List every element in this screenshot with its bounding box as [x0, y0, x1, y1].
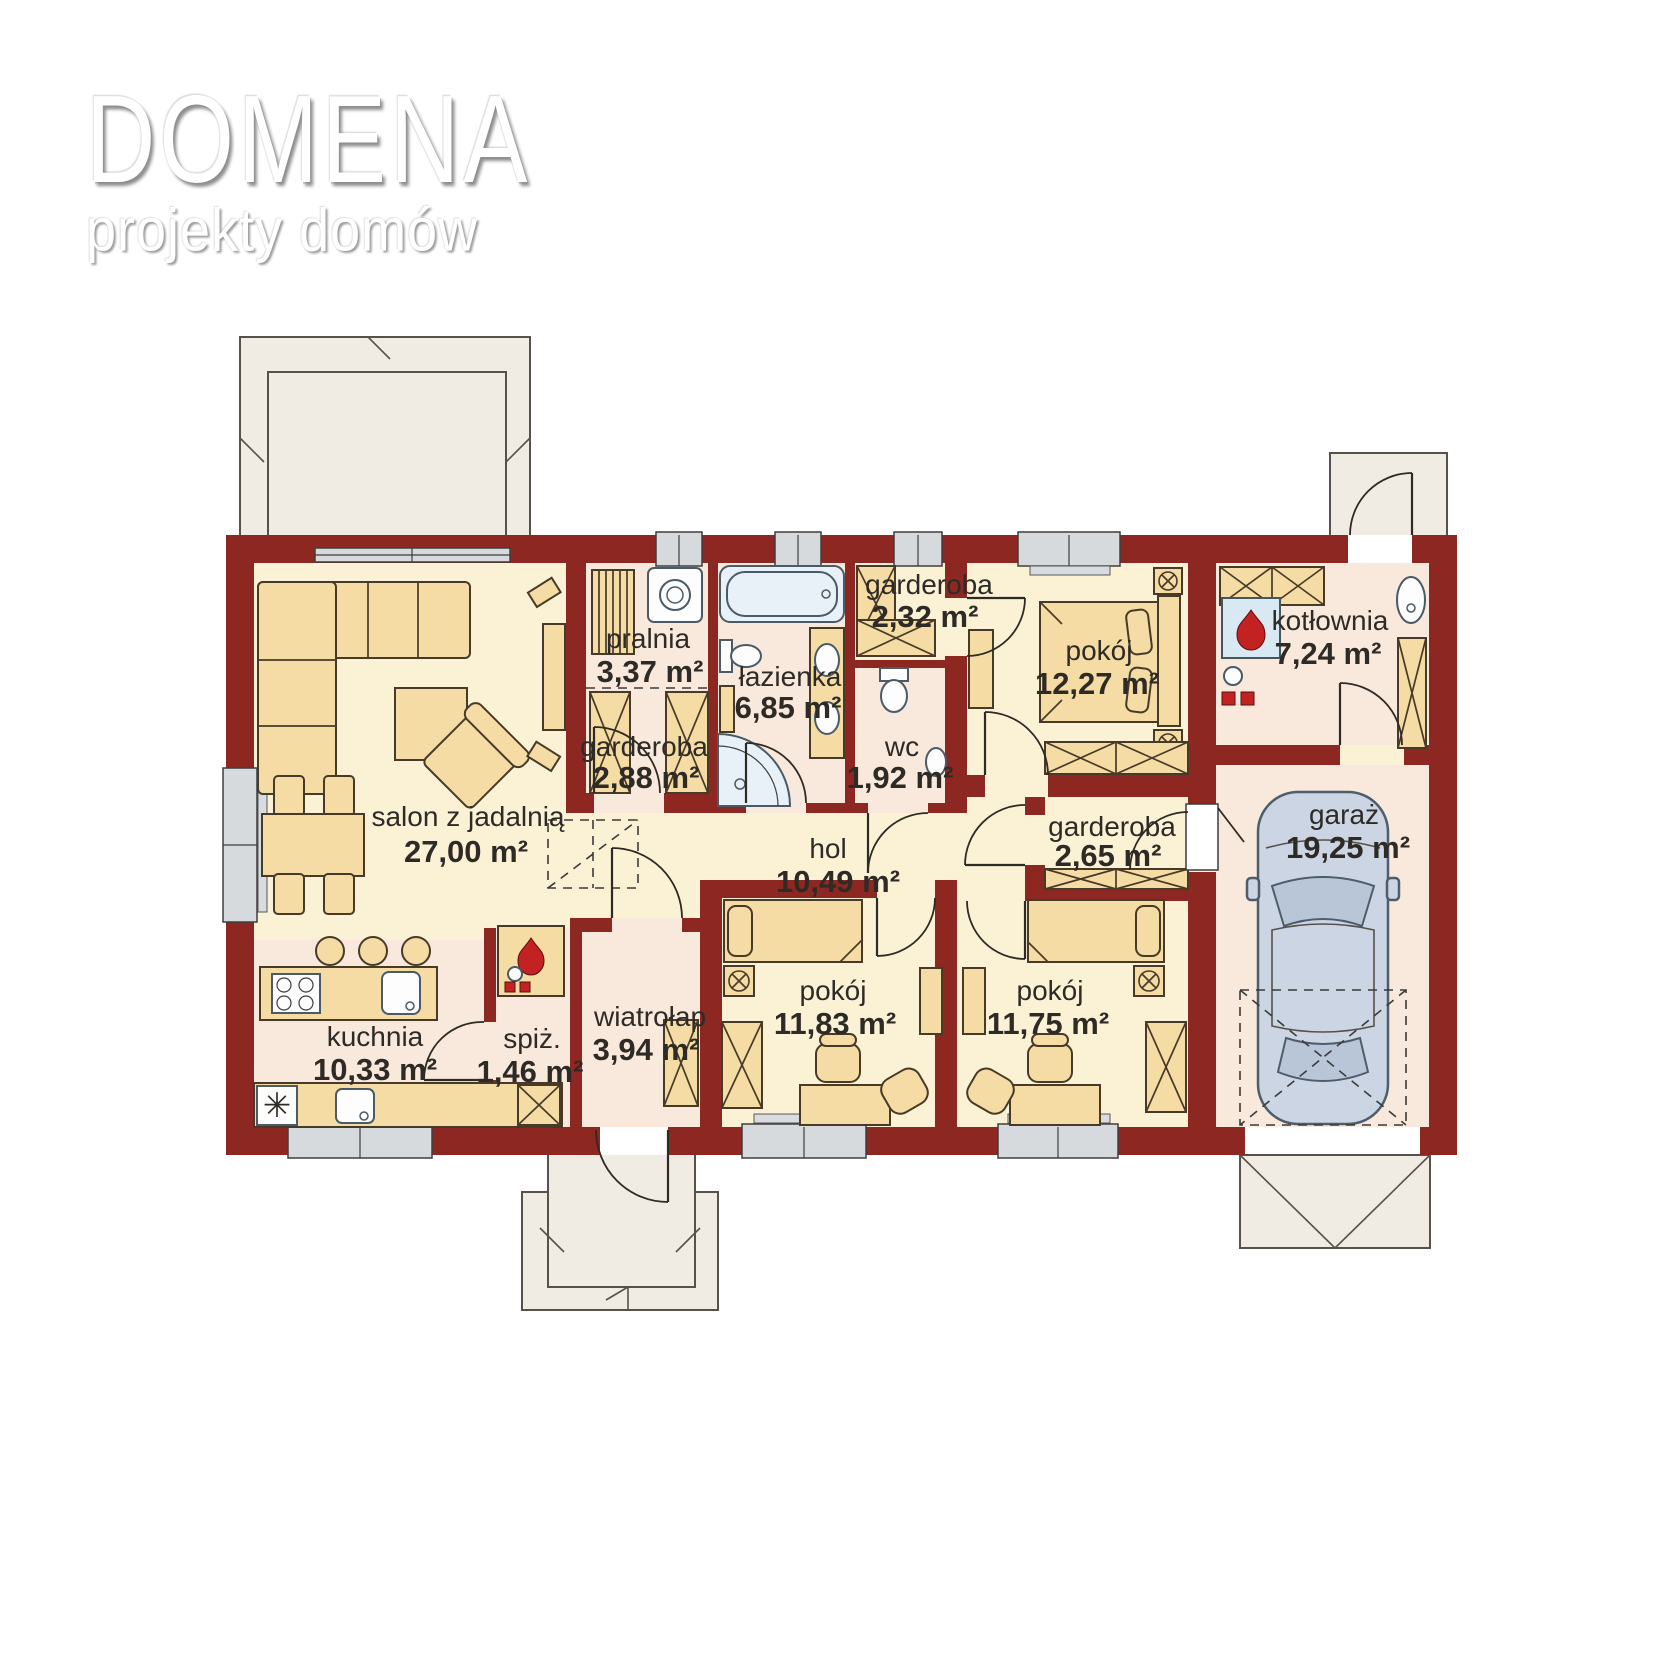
fireplace: [498, 926, 564, 996]
label-garderoba2-area: 2,32 m²: [872, 599, 979, 634]
kitchen-island: [260, 967, 437, 1020]
island-sink-icon: [382, 972, 420, 1014]
bed-pokoj2: [724, 900, 862, 962]
sideboard: [543, 624, 565, 730]
fridge-icon: ✳: [257, 1086, 297, 1125]
label-lazienka-area: 6,85 m²: [735, 690, 842, 725]
bar-stools: [316, 937, 430, 965]
wardrobe-pokoj1: [1045, 742, 1188, 774]
label-lazienka-name: łazienka: [739, 661, 842, 692]
entry-porch: [522, 1145, 718, 1310]
wardrobe-pokoj2: [722, 1022, 762, 1108]
toilet-wc: [880, 668, 908, 712]
washing-machine-icon: [648, 568, 702, 622]
label-hol-name: hol: [809, 833, 846, 864]
label-wiatrolap-name: wiatrołap: [593, 1001, 706, 1032]
label-kuchnia-area: 10,33 m²: [313, 1052, 437, 1087]
garage-apron: [1240, 1155, 1430, 1248]
label-pralnia-area: 3,37 m²: [597, 654, 704, 689]
hob-icon: [272, 974, 320, 1013]
desk-chair-pokoj2: [816, 1034, 860, 1082]
desk-pokoj3: [1010, 1085, 1100, 1125]
label-spiz-area: 1,46 m²: [477, 1054, 584, 1089]
label-pokoj1-area: 12,27 m²: [1035, 666, 1159, 701]
wardrobe-pokoj3: [1146, 1022, 1186, 1112]
nightstand-top: [1154, 568, 1182, 594]
wardrobe-kotlownia-right: [1398, 638, 1426, 748]
dining-table: [262, 814, 364, 876]
label-spiz-name: spiż.: [503, 1023, 561, 1054]
label-hol-area: 10,49 m²: [776, 864, 900, 899]
label-kotlownia-area: 7,24 m²: [1275, 636, 1382, 671]
label-kuchnia-name: kuchnia: [327, 1021, 424, 1052]
dresser-pokoj1: [969, 630, 993, 708]
label-wc-name: wc: [884, 731, 919, 762]
lamp-pokoj2: [724, 966, 754, 996]
label-wc-area: 1,92 m²: [847, 760, 954, 795]
kotlownia-sink-icon: [1397, 577, 1425, 623]
tall-cabinet-x: [518, 1085, 560, 1125]
label-pralnia-name: pralnia: [606, 623, 690, 654]
label-pokoj2-area: 11,83 m²: [774, 1006, 896, 1041]
kotlownia-entry-gap: [1348, 535, 1412, 563]
label-garderoba1-area: 2,88 m²: [593, 760, 700, 795]
label-garaz-area: 19,25 m²: [1286, 830, 1410, 865]
label-pokoj3-area: 11,75 m²: [987, 1006, 1109, 1041]
terrace-slider-window: [315, 548, 510, 562]
cabinet-pokoj2: [920, 968, 942, 1034]
label-garderoba1-name: garderoba: [580, 731, 708, 762]
kitchen-counter: ✳: [254, 1083, 562, 1127]
cabinet-pokoj3: [963, 968, 985, 1034]
bed-pokoj3: [1028, 900, 1164, 962]
label-pokoj2-name: pokój: [800, 975, 867, 1006]
label-garaz-name: garaż: [1309, 799, 1379, 830]
label-garderoba3-area: 2,65 m²: [1055, 838, 1162, 873]
label-kotlownia-name: kotłownia: [1272, 605, 1389, 636]
desk-pokoj2: [800, 1085, 890, 1125]
bath-cabinet: [720, 686, 734, 732]
label-wiatrolap-area: 3,94 m²: [593, 1032, 700, 1067]
label-pokoj1-name: pokój: [1066, 635, 1133, 666]
label-salon-name: salon z jadalnią: [371, 801, 564, 832]
desk-chair-pokoj3: [1028, 1034, 1072, 1082]
svg-text:✳: ✳: [263, 1087, 292, 1125]
label-pokoj3-name: pokój: [1017, 975, 1084, 1006]
bathtub: [720, 566, 844, 622]
terrace: [240, 337, 530, 563]
lamp-pokoj3: [1134, 966, 1164, 996]
label-salon-area: 27,00 m²: [404, 834, 528, 869]
entrance-gap: [600, 1127, 668, 1155]
floor-plan: ✳: [0, 0, 1680, 1680]
label-garderoba2-name: garderoba: [865, 569, 993, 600]
counter-sink-icon: [336, 1089, 374, 1123]
